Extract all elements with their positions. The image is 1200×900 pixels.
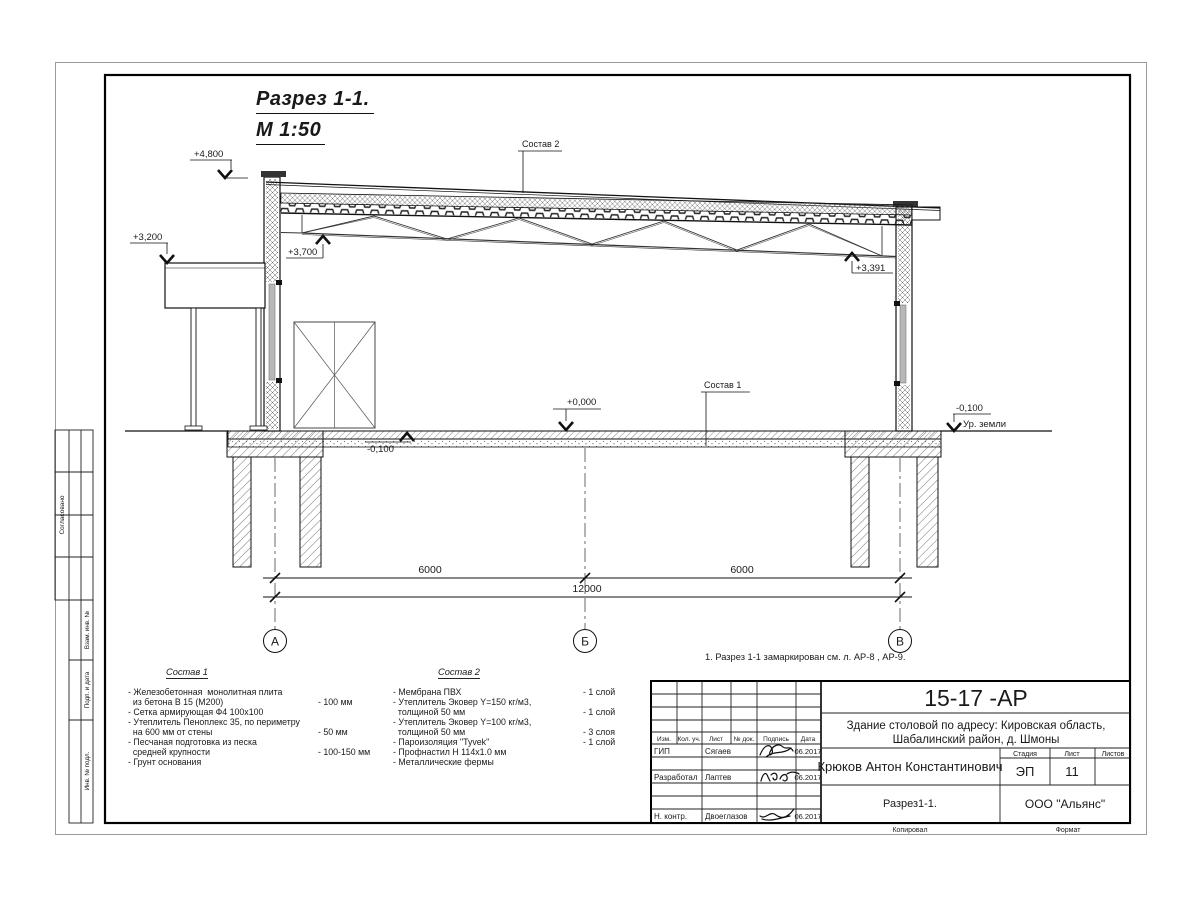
side-stamp-podp-label: Подп. и дата — [84, 671, 91, 708]
doc-number: 15-17 -АР — [924, 685, 1028, 711]
roof-cornice — [912, 207, 940, 220]
list-item: - Песчаная подготовка из песка — [128, 737, 390, 747]
author-name: Крюков Антон Константинович — [817, 759, 1002, 774]
svg-text:Лаптев: Лаптев — [705, 773, 731, 782]
dim-span1: 6000 — [418, 564, 442, 576]
svg-text:-0,100: -0,100 — [367, 444, 394, 455]
parapet-cap-left — [261, 171, 286, 177]
svg-text:Состав 1: Состав 1 — [704, 380, 741, 390]
svg-text:Состав 2: Состав 2 — [522, 139, 559, 149]
object-line1: Здание столовой по адресу: Кировская обл… — [847, 720, 1106, 732]
footer-kopiroval: Копировал — [892, 827, 927, 834]
list-item: - Утеплитель Пеноплекс 35, по периметру — [128, 717, 390, 727]
company-name: ООО "Альянс" — [1025, 797, 1105, 811]
list-item: - Мембрана ПВХ- 1 слой — [393, 687, 655, 697]
side-stamp-approved-label: Согласовано — [59, 495, 66, 534]
svg-text:Сягаев: Сягаев — [705, 747, 731, 756]
side-stamp-inv-label: Инв. № подл. — [84, 751, 91, 790]
side-stamp-vzam-label: Взам. инв. № — [84, 610, 91, 649]
svg-text:Стадия: Стадия — [1013, 751, 1037, 758]
list-item: - Утеплитель Эковер Y=150 кг/м3, — [393, 697, 655, 707]
list-item: на 600 мм от стены- 50 мм — [128, 727, 390, 737]
drawing-note: 1. Разрез 1-1 замаркирован см. л. АР-8 ,… — [705, 652, 906, 662]
sheet-title: Разрез1-1. — [883, 798, 937, 810]
material-list-1: Состав 1 - Железобетонная монолитная пли… — [128, 667, 390, 767]
svg-text:Двоеглазов: Двоеглазов — [705, 812, 748, 821]
axis-a: А — [271, 635, 279, 649]
dim-span2: 6000 — [730, 564, 754, 576]
drawing-title: Разрез 1-1. — [256, 88, 374, 114]
list-item: толщиной 50 мм- 1 слой — [393, 707, 655, 717]
glazing-right — [900, 305, 906, 383]
svg-text:+3,391: +3,391 — [856, 263, 885, 274]
svg-text:Изм.: Изм. — [657, 736, 671, 743]
sheet-value: 11 — [1065, 764, 1079, 779]
svg-text:ГИП: ГИП — [654, 747, 670, 756]
list-item: - Металлические фермы — [393, 757, 655, 767]
drawing-sheet: Согласовано Взам. инв. № Подп. и дата Ин… — [0, 0, 1200, 900]
svg-text:Листов: Листов — [1102, 751, 1125, 758]
floor-slab — [228, 431, 941, 447]
svg-text:+3,700: +3,700 — [288, 247, 317, 258]
material-list-1-title: Состав 1 — [166, 667, 208, 679]
side-stamp: Согласовано Взам. инв. № Подп. и дата Ин… — [55, 430, 93, 823]
svg-text:-0,100: -0,100 — [956, 403, 983, 414]
list-item: - Грунт основания — [128, 757, 390, 767]
object-line2: Шабалинский район, д. Шмоны — [893, 734, 1060, 746]
stage-value: ЭП — [1016, 764, 1035, 779]
axis-v: В — [896, 635, 904, 649]
drawing-scale: М 1:50 — [256, 119, 325, 145]
material-list-2: Состав 2 - Мембрана ПВХ- 1 слой - Утепли… — [393, 667, 655, 767]
footer-format: Формат — [1056, 827, 1082, 834]
list-item: - Сетка армирующая Ф4 100х100 — [128, 707, 390, 717]
list-item: - Утеплитель Эковер Y=100 кг/м3, — [393, 717, 655, 727]
title-block: 15-17 -АР Здание столовой по адресу: Кир… — [651, 681, 1130, 834]
svg-text:+0,000: +0,000 — [567, 397, 596, 408]
svg-text:Лист: Лист — [709, 736, 723, 743]
list-item: - Пароизоляция "Tyvek"- 1 слой — [393, 737, 655, 747]
svg-text:№ док.: № док. — [734, 736, 755, 743]
svg-text:Дата: Дата — [801, 736, 816, 743]
svg-text:Кол. уч.: Кол. уч. — [677, 736, 700, 743]
list-item: из бетона В 15 (М200)- 100 мм — [128, 697, 390, 707]
svg-text:Разработал: Разработал — [654, 773, 698, 782]
list-item: толщиной 50 мм- 3 слоя — [393, 727, 655, 737]
svg-text:06.2017: 06.2017 — [794, 747, 821, 756]
svg-text:Лист: Лист — [1064, 751, 1080, 758]
list-item: средней крупности- 100-150 мм — [128, 747, 390, 757]
svg-text:06.2017: 06.2017 — [794, 812, 821, 821]
dim-total: 12000 — [572, 583, 601, 595]
drawing-header: Разрез 1-1. М 1:50 — [256, 88, 374, 150]
canopy-post-inner — [256, 308, 261, 428]
ground-level-label: Ур. земли — [963, 419, 1006, 430]
material-list-2-title: Состав 2 — [438, 667, 480, 679]
svg-text:Н. контр.: Н. контр. — [654, 812, 687, 821]
svg-text:+3,200: +3,200 — [133, 232, 162, 243]
svg-text:Подпись: Подпись — [763, 736, 789, 743]
glazing-left — [269, 284, 275, 380]
canopy-post-outer — [191, 308, 196, 428]
svg-text:+4,800: +4,800 — [194, 149, 223, 160]
list-item: - Профнастил Н 114х1.0 мм — [393, 747, 655, 757]
list-item: - Железобетонная монолитная плита — [128, 687, 390, 697]
axis-b: Б — [581, 635, 589, 649]
